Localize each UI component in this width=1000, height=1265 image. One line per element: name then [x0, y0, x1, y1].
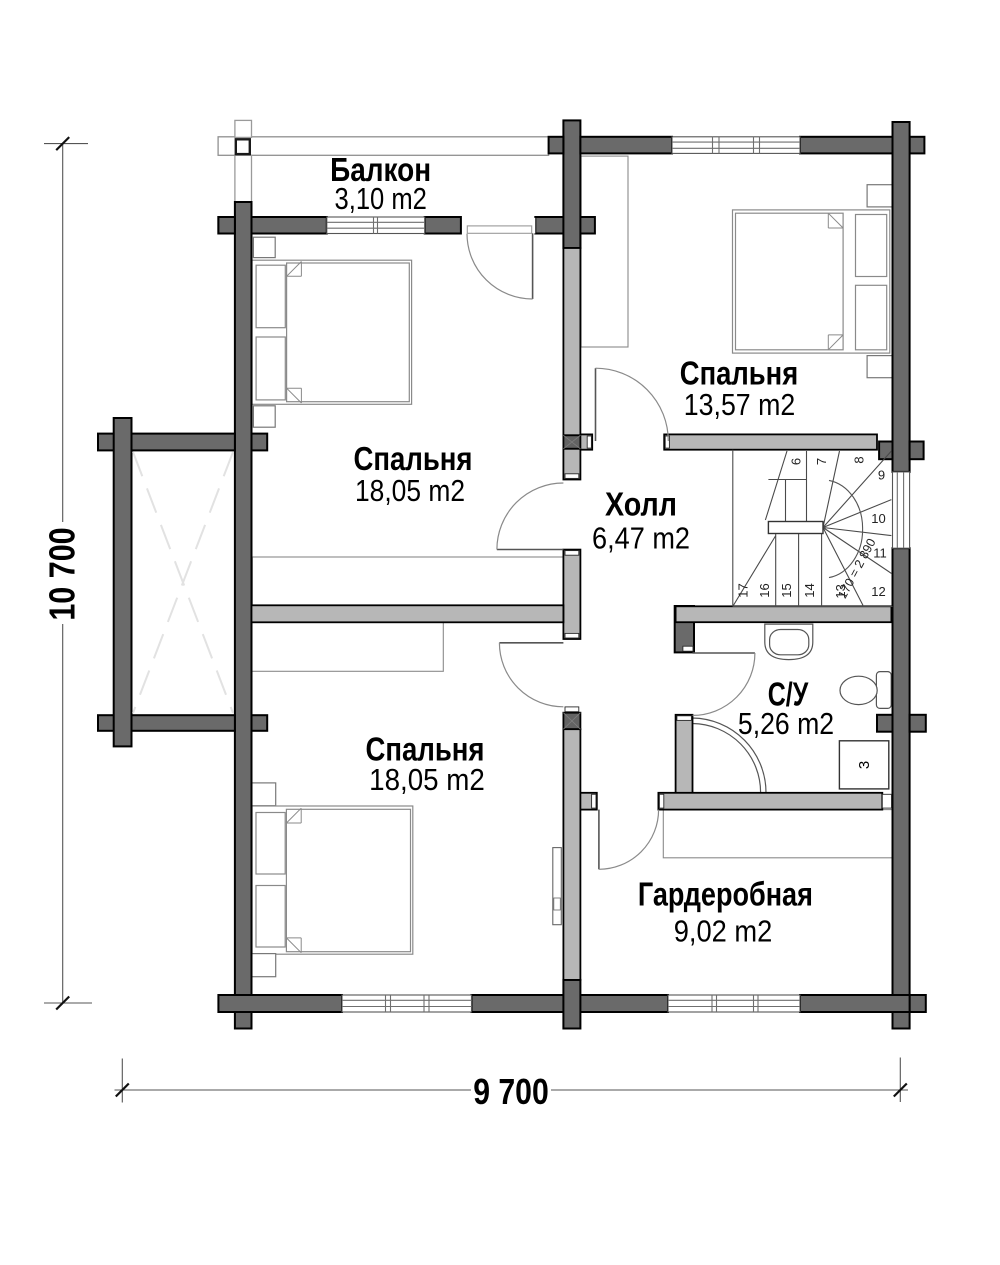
svg-text:13,57 m2: 13,57 m2: [684, 388, 795, 422]
svg-text:6: 6: [789, 458, 804, 465]
svg-text:17: 17: [735, 583, 750, 597]
svg-text:7: 7: [814, 458, 829, 465]
svg-text:9,02 m2: 9,02 m2: [674, 915, 773, 949]
svg-text:10: 10: [871, 511, 885, 526]
svg-text:18,05 m2: 18,05 m2: [355, 474, 465, 508]
svg-text:8: 8: [852, 456, 867, 463]
svg-text:9 700: 9 700: [473, 1071, 549, 1112]
svg-text:14: 14: [802, 583, 817, 597]
svg-text:Гардеробная: Гардеробная: [638, 876, 813, 913]
svg-text:Спальня: Спальня: [680, 355, 798, 392]
svg-text:3,10 m2: 3,10 m2: [335, 182, 427, 216]
svg-text:Холл: Холл: [605, 486, 677, 523]
svg-text:18,05 m2: 18,05 m2: [369, 763, 485, 797]
svg-text:10 700: 10 700: [42, 527, 83, 620]
svg-text:Спальня: Спальня: [366, 731, 485, 768]
svg-text:16: 16: [757, 583, 772, 597]
svg-text:12: 12: [871, 584, 885, 599]
svg-text:6,47 m2: 6,47 m2: [592, 522, 690, 556]
svg-text:15: 15: [779, 583, 794, 597]
svg-text:5,26 m2: 5,26 m2: [738, 707, 834, 741]
svg-text:Спальня: Спальня: [354, 440, 473, 477]
svg-text:3: 3: [856, 761, 873, 769]
svg-text:9: 9: [878, 468, 885, 483]
